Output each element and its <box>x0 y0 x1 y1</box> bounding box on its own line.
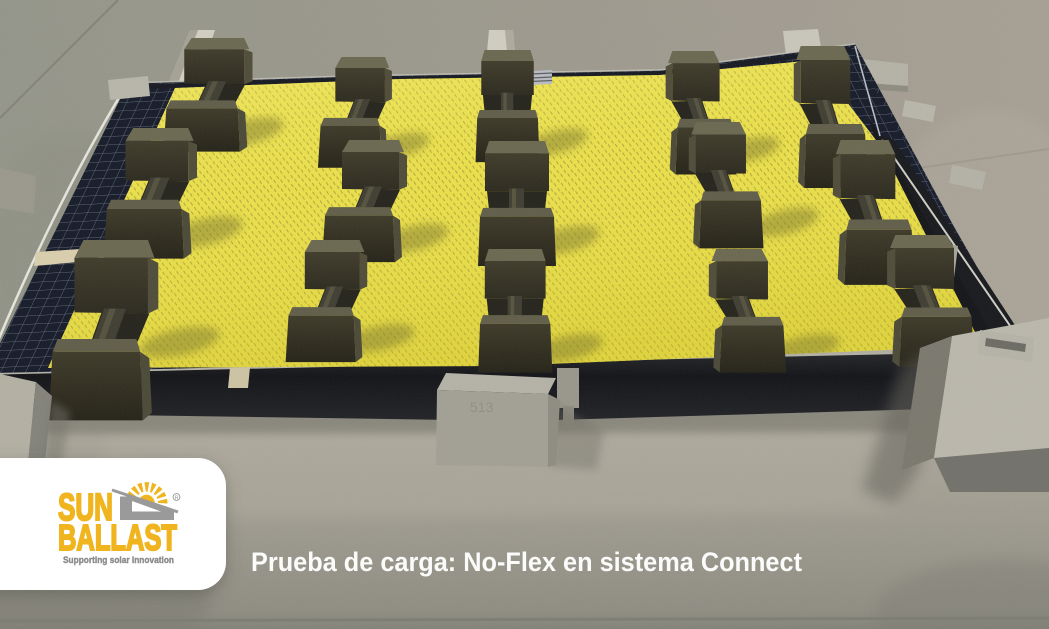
svg-text:Supporting solar innovation: Supporting solar innovation <box>63 555 174 566</box>
svg-text:R: R <box>175 496 179 502</box>
svg-text:BALLAST: BALLAST <box>58 517 177 558</box>
svg-text:Prueba de carga: No-Flex en si: Prueba de carga: No-Flex en sistema Conn… <box>251 547 802 577</box>
